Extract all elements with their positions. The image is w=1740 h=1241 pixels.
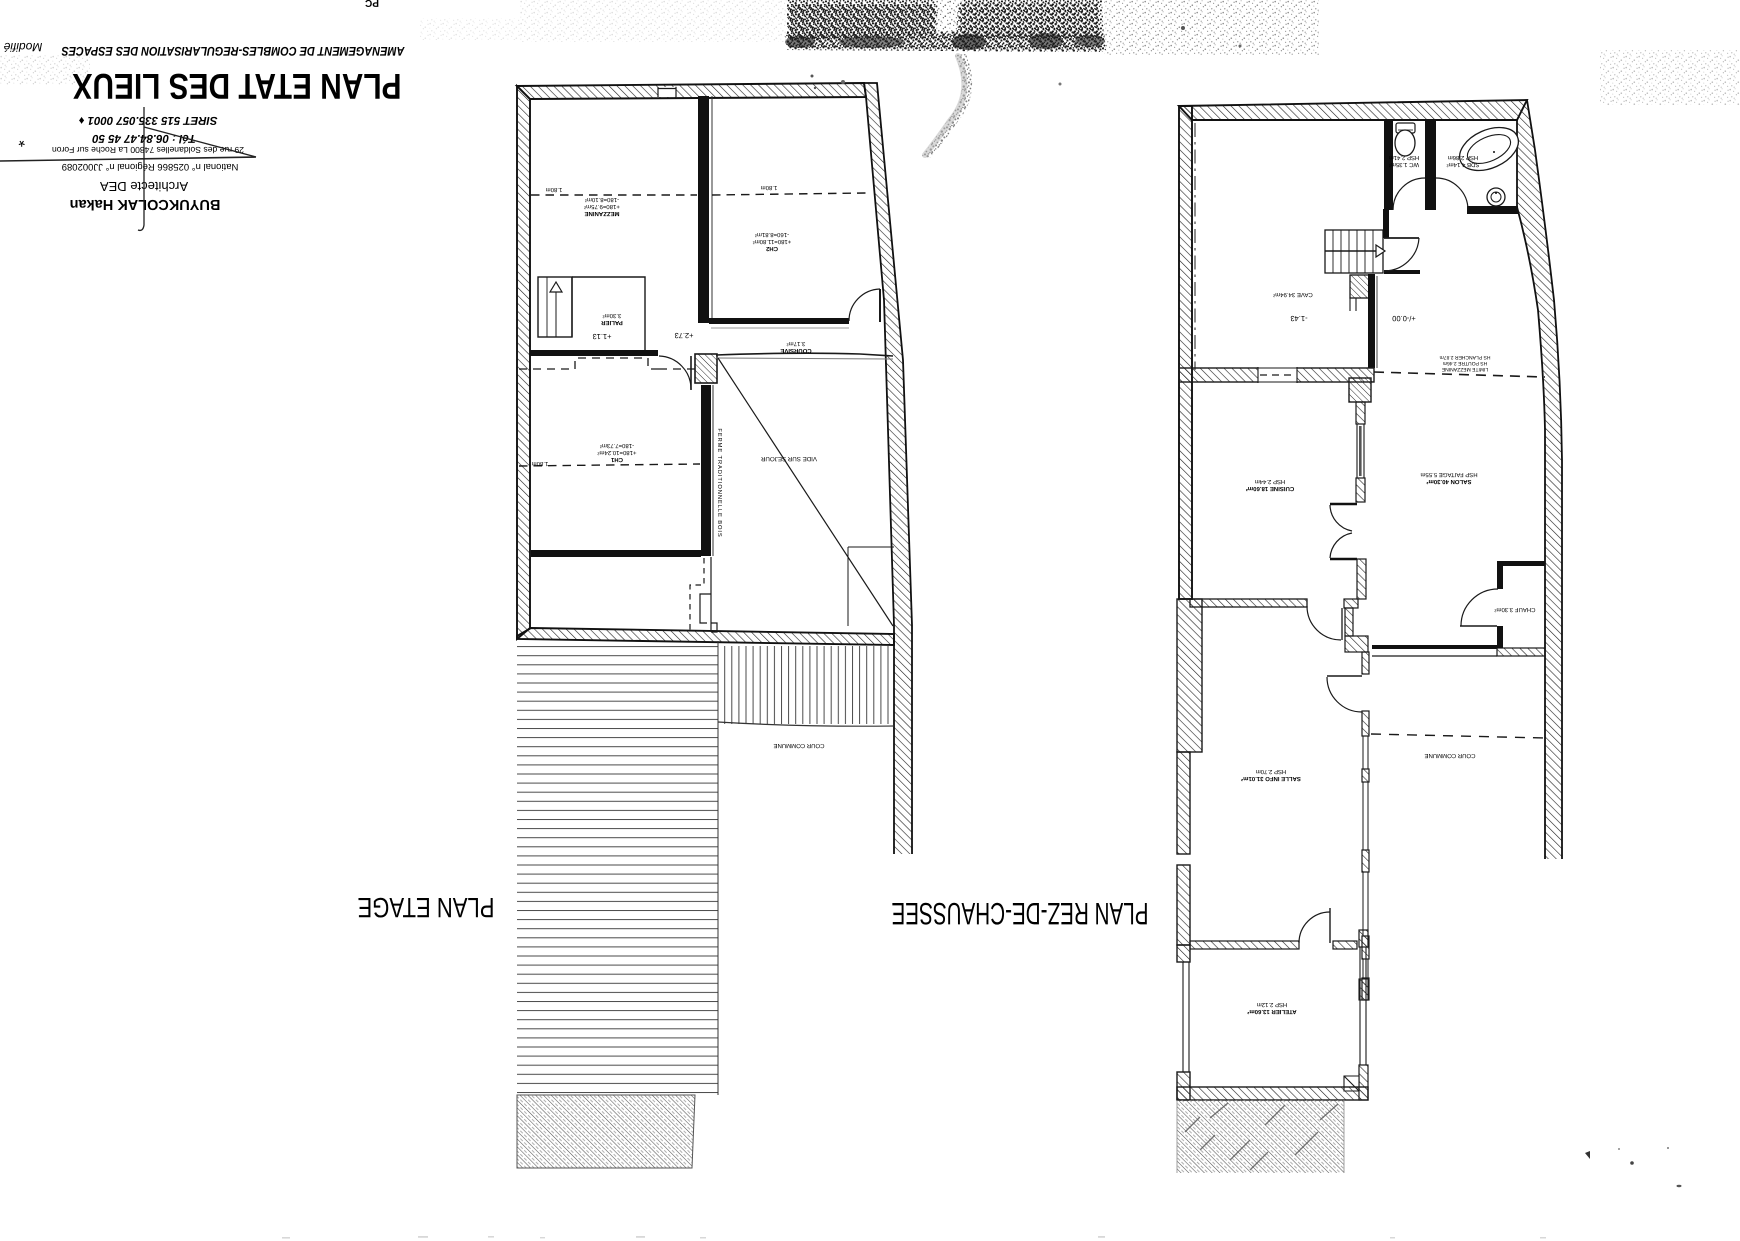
svg-text:+180=10.24m²: +180=10.24m² xyxy=(597,449,636,456)
svg-text:PLAN ETAT DES LIEUX: PLAN ETAT DES LIEUX xyxy=(73,66,402,107)
svg-text:COUR COMMUNE: COUR COMMUNE xyxy=(774,742,825,749)
svg-text:VIDE SUR SEJOUR: VIDE SUR SEJOUR xyxy=(760,455,817,462)
svg-text:SALLE INFO 31.01m²: SALLE INFO 31.01m² xyxy=(1241,775,1301,782)
svg-text:HSP 2.41m: HSP 2.41m xyxy=(1389,154,1420,161)
svg-text:HSP 2.70m: HSP 2.70m xyxy=(1256,768,1287,775)
svg-text:BUYUKCOLAK Hakan: BUYUKCOLAK Hakan xyxy=(70,196,221,212)
svg-text:HSP FAITAGE 5.55m: HSP FAITAGE 5.55m xyxy=(1420,471,1477,478)
svg-text:-160=8.81m²: -160=8.81m² xyxy=(755,231,789,238)
svg-text:COUR COMMUNE: COUR COMMUNE xyxy=(1425,752,1476,759)
svg-text:+1.13: +1.13 xyxy=(593,332,612,341)
svg-text:ATELIER 13.60m²: ATELIER 13.60m² xyxy=(1247,1008,1296,1015)
svg-text:HSP 2.44m: HSP 2.44m xyxy=(1255,478,1286,485)
svg-text:CUISINE 18.60m²: CUISINE 18.60m² xyxy=(1246,485,1294,492)
svg-text:COURSIVE: COURSIVE xyxy=(780,347,811,354)
svg-text:3.30m²: 3.30m² xyxy=(603,312,622,319)
svg-text:1.80m: 1.80m xyxy=(532,460,549,467)
svg-text:PC: PC xyxy=(365,0,379,8)
svg-text:Modifié: Modifié xyxy=(3,40,42,54)
svg-text:AMENAGEMENT DE COMBLES-REGULAR: AMENAGEMENT DE COMBLES-REGULARISATION DE… xyxy=(61,44,405,58)
svg-text:HS PLANCHER 2.87m: HS PLANCHER 2.87m xyxy=(1440,354,1491,360)
svg-text:PLAN REZ-DE-CHAUSSEE: PLAN REZ-DE-CHAUSSEE xyxy=(892,896,1149,931)
svg-text:National n° 025866 Régional n°: National n° 025866 Régional n° JJ002089 xyxy=(62,161,239,172)
svg-text:+/-0.00: +/-0.00 xyxy=(1392,314,1416,323)
svg-text:HSP 2.12m: HSP 2.12m xyxy=(1257,1001,1288,1008)
svg-text:MEZZANINE: MEZZANINE xyxy=(585,210,620,217)
svg-text:*: * xyxy=(18,131,25,150)
svg-text:WC 1.35m²: WC 1.35m² xyxy=(1389,161,1419,168)
svg-text:SALON 40.30m²: SALON 40.30m² xyxy=(1426,478,1471,485)
svg-text:+2.73: +2.73 xyxy=(675,331,694,340)
svg-text:PALIER: PALIER xyxy=(601,319,623,326)
svg-text:CHAUF 3.30m²: CHAUF 3.30m² xyxy=(1494,606,1535,613)
svg-text:CH1: CH1 xyxy=(610,456,623,463)
svg-text:PLAN ETAGE: PLAN ETAGE xyxy=(358,892,495,923)
svg-text:+180=9.75m²: +180=9.75m² xyxy=(584,203,620,210)
svg-text:1.80m: 1.80m xyxy=(761,184,778,191)
svg-text:SIRET 515 335.057 0001 ♦: SIRET 515 335.057 0001 ♦ xyxy=(78,114,217,126)
svg-text:3.17m²: 3.17m² xyxy=(787,340,806,347)
svg-text:HSP 2.86m: HSP 2.86m xyxy=(1448,154,1479,161)
svg-text:SDB 4.14m²: SDB 4.14m² xyxy=(1447,161,1480,168)
svg-text:1.80m: 1.80m xyxy=(546,186,563,193)
svg-text:-180=8.10m²: -180=8.10m² xyxy=(585,196,619,203)
svg-text:+180=11.80m²: +180=11.80m² xyxy=(753,238,792,245)
svg-text:FERME TRADITIONNELLE BOIS: FERME TRADITIONNELLE BOIS xyxy=(716,428,723,537)
svg-text:-1.43: -1.43 xyxy=(1290,314,1307,323)
svg-text:CH2: CH2 xyxy=(765,245,778,252)
svg-text:CAVE 34.94m²: CAVE 34.94m² xyxy=(1273,291,1313,298)
svg-text:-180=7.73m²: -180=7.73m² xyxy=(600,442,634,449)
